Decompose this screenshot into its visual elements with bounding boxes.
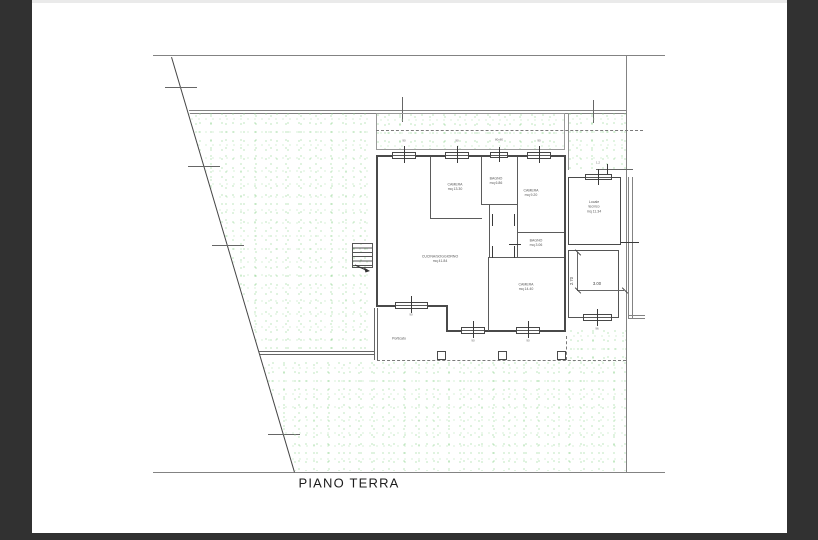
room-name: BAGNO (490, 177, 503, 181)
exterior-wall (376, 155, 378, 307)
room-area: mq 6.86 (490, 182, 503, 186)
door-tick (509, 244, 521, 245)
room-area: mq 9.20 (525, 194, 538, 198)
site-boundary-right (626, 55, 627, 472)
door-tick (492, 246, 493, 258)
garden-wall (259, 351, 374, 352)
window-label: 90 (455, 139, 458, 142)
floor-plan: 90 90 80x80 90 90 90 90 1.2 96 3.00 2.70… (0, 0, 818, 540)
interior-wall (430, 218, 482, 219)
exterior-wall (446, 305, 448, 332)
window-label: 90 (471, 339, 474, 342)
window-tick (473, 321, 474, 338)
exterior-wall (564, 155, 566, 332)
porch-left-wall (374, 308, 375, 360)
dimension-text-width: 3.00 (593, 282, 601, 286)
site-boundary-bottom (153, 472, 665, 473)
interior-wall (481, 204, 518, 205)
neighbour-wall (628, 318, 645, 319)
image-viewer-background: 90 90 80x80 90 90 90 90 1.2 96 3.00 2.70… (0, 0, 818, 540)
neighbour-wall (628, 177, 629, 318)
window-tick (457, 146, 458, 163)
room-area: mq 14.40 (519, 288, 534, 292)
room-name: CUCINA/SOGGIORNO (422, 255, 458, 259)
window-tick (539, 146, 540, 163)
fence-line (189, 110, 626, 111)
site-boundary-top (153, 55, 665, 56)
porch-column (498, 351, 507, 360)
garden-wall (260, 354, 374, 355)
room-label-porticato: Porticato (392, 337, 406, 342)
room-area: mq 41.84 (433, 260, 448, 264)
boundary-tick (165, 87, 197, 88)
room-name: BAGNO (530, 239, 543, 243)
room-name: Porticato (392, 337, 406, 341)
room-label-bagno1: BAGNOmq 6.86 (490, 176, 503, 185)
room-label-locale-tecnico: Localetecnicomq 11.34 (587, 200, 601, 214)
room-name: tecnico (588, 205, 599, 209)
dimension-line-horizontal (577, 290, 624, 291)
garden-right-strip (570, 330, 626, 362)
stair-direction-arrow (353, 262, 375, 274)
window-label: 90 (537, 139, 540, 142)
room-label-cucina: CUCINA/SOGGIORNOmq 41.84 (422, 254, 458, 263)
door-tick (492, 214, 493, 226)
window-tick (598, 169, 599, 185)
interior-wall (430, 157, 431, 219)
room-area: mq 11.34 (587, 210, 601, 214)
window-tick (499, 147, 500, 162)
porch-left-wall (377, 308, 378, 360)
dimension-line-vertical (577, 252, 578, 290)
interior-wall (517, 232, 564, 233)
interior-wall (488, 257, 489, 331)
page-title: PIANO TERRA (298, 476, 399, 491)
window-label: 90 (402, 139, 405, 142)
window-label: 90 (526, 339, 529, 342)
interior-wall (489, 204, 490, 257)
room-name: CAMERA (519, 283, 534, 287)
door-tick (514, 214, 515, 226)
neighbour-wall (628, 315, 645, 316)
window-label: 1.2 (596, 161, 600, 164)
porch-column (557, 351, 566, 360)
room-name: Locale (589, 200, 599, 204)
room-label-camera1: CAMERAmq 13.30 (448, 182, 463, 191)
dimension-text-depth: 2.70 (570, 277, 574, 285)
window-tick (528, 321, 529, 338)
room-label-camera2: CAMERAmq 9.20 (524, 188, 539, 197)
interior-wall (517, 157, 518, 258)
garden-left (188, 113, 372, 351)
neighbour-wall (632, 177, 633, 318)
room-area: mq 3.06 (530, 244, 543, 248)
gate-line (596, 169, 633, 170)
window-tick (597, 309, 598, 326)
dashed-line-rear (376, 130, 643, 131)
garden-rear-strip (376, 113, 565, 150)
window-label: 80x80 (495, 138, 503, 141)
dashed-line-porch-side (566, 336, 567, 360)
porch-column (437, 351, 446, 360)
interior-wall (489, 257, 564, 258)
garden-front (261, 362, 626, 471)
window-label: 90 (409, 313, 412, 316)
window-tick (404, 146, 405, 163)
neighbour-tick (621, 242, 639, 243)
dashed-line-porch (377, 360, 626, 361)
room-area: mq 13.30 (448, 188, 463, 192)
interior-wall (481, 157, 482, 205)
door-tick (514, 246, 515, 258)
room-label-bagno2: BAGNOmq 3.06 (530, 238, 543, 247)
window-tick (411, 296, 412, 313)
room-name: CAMERA (524, 189, 539, 193)
window-label: 96 (595, 327, 598, 330)
room-name: CAMERA (448, 183, 463, 187)
room-label-camera3: CAMERAmq 14.40 (519, 282, 534, 291)
